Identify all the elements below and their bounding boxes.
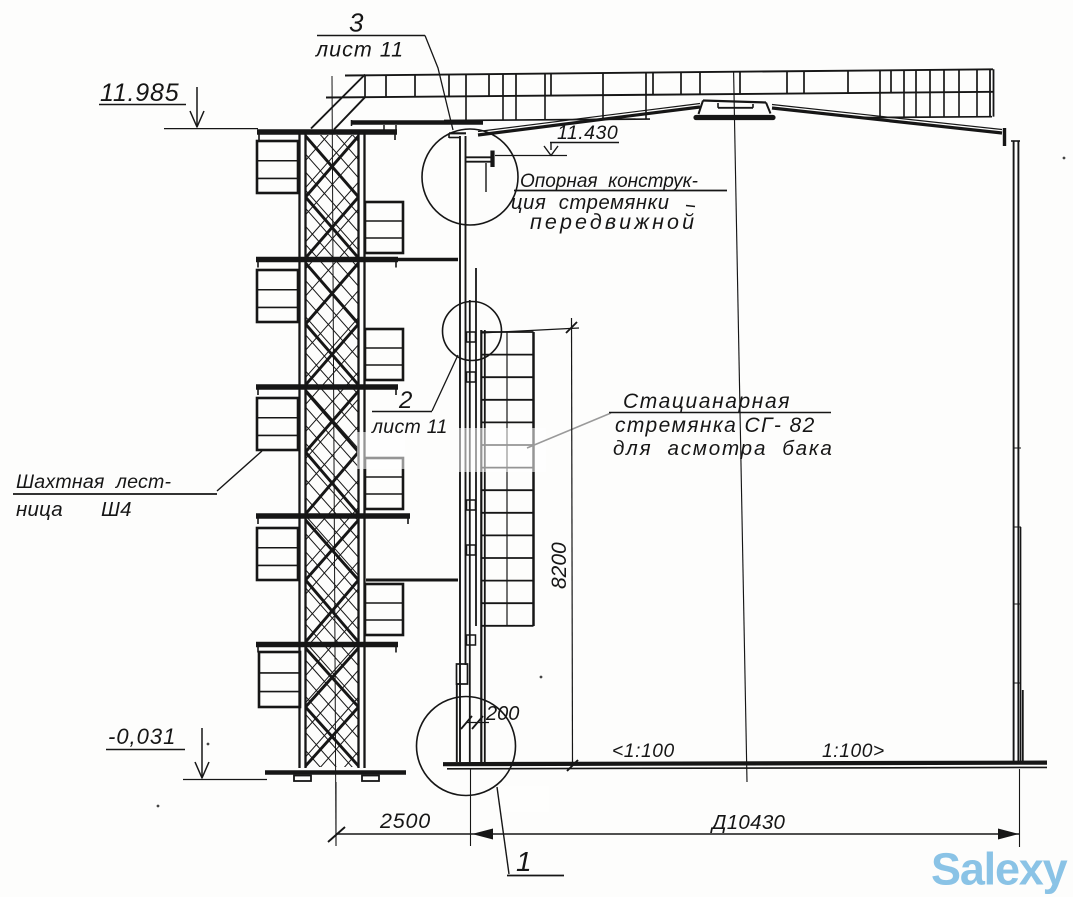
svg-text:Salexy: Salexy <box>931 844 1068 895</box>
svg-text:передвижной: передвижной <box>530 210 697 234</box>
svg-text:Стацианарная: Стацианарная <box>623 390 791 413</box>
svg-text:лист 11: лист 11 <box>314 38 404 62</box>
svg-text:2: 2 <box>398 387 412 414</box>
svg-text:Шахтная лест-: Шахтная лест- <box>16 471 172 493</box>
svg-text:Д10430: Д10430 <box>710 811 786 834</box>
svg-text:-0,031: -0,031 <box>108 724 176 749</box>
svg-text:ница: ница <box>16 498 63 521</box>
svg-text:лист 11: лист 11 <box>371 416 448 438</box>
svg-text:1: 1 <box>516 846 532 877</box>
svg-text:2500: 2500 <box>379 809 431 833</box>
svg-text:11.985: 11.985 <box>100 79 179 107</box>
svg-text:200: 200 <box>485 703 519 725</box>
svg-text:<1:100: <1:100 <box>612 741 675 762</box>
svg-text:8200: 8200 <box>548 542 571 589</box>
svg-text:Ш4: Ш4 <box>101 498 132 521</box>
svg-text:1:100>: 1:100> <box>822 741 885 762</box>
svg-text:Опорная конструк-: Опорная конструк- <box>520 171 698 192</box>
svg-text:3: 3 <box>349 8 364 38</box>
svg-text:для асмотра бака: для асмотра бака <box>613 437 834 460</box>
svg-text:стремянка СГ- 82: стремянка СГ- 82 <box>615 414 816 437</box>
